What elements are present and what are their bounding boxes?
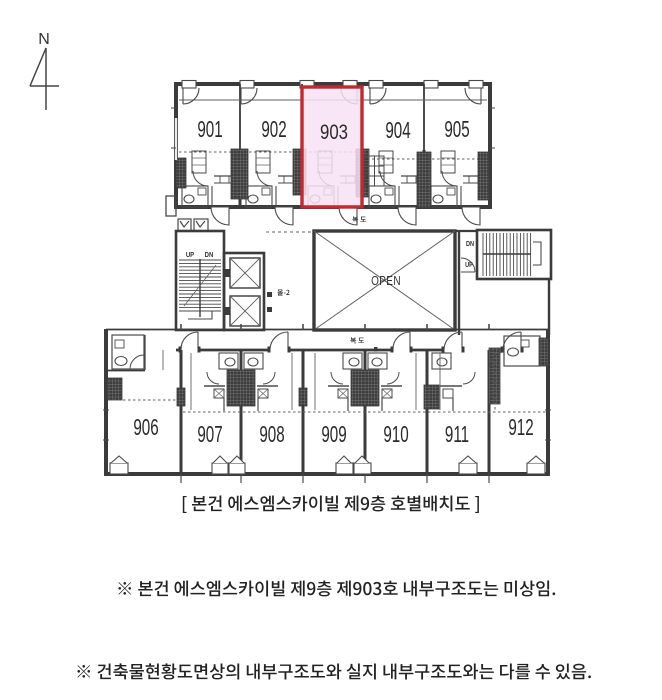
svg-text:906: 906: [133, 415, 158, 441]
svg-text:903: 903: [320, 121, 348, 144]
svg-text:902: 902: [261, 117, 286, 143]
svg-text:DN: DN: [205, 251, 214, 259]
svg-text:910: 910: [383, 422, 408, 448]
svg-text:909: 909: [321, 422, 346, 448]
svg-text:905: 905: [444, 117, 469, 143]
svg-text:UP: UP: [186, 251, 195, 259]
svg-text:901: 901: [197, 117, 222, 143]
svg-text:907: 907: [197, 422, 222, 448]
svg-text:DN: DN: [466, 240, 474, 248]
svg-text:912: 912: [508, 415, 533, 441]
svg-text:OPEN: OPEN: [371, 275, 401, 288]
svg-text:911: 911: [445, 422, 469, 448]
svg-text:904: 904: [385, 118, 410, 144]
svg-text:N: N: [38, 31, 50, 48]
svg-text:908: 908: [259, 422, 284, 448]
